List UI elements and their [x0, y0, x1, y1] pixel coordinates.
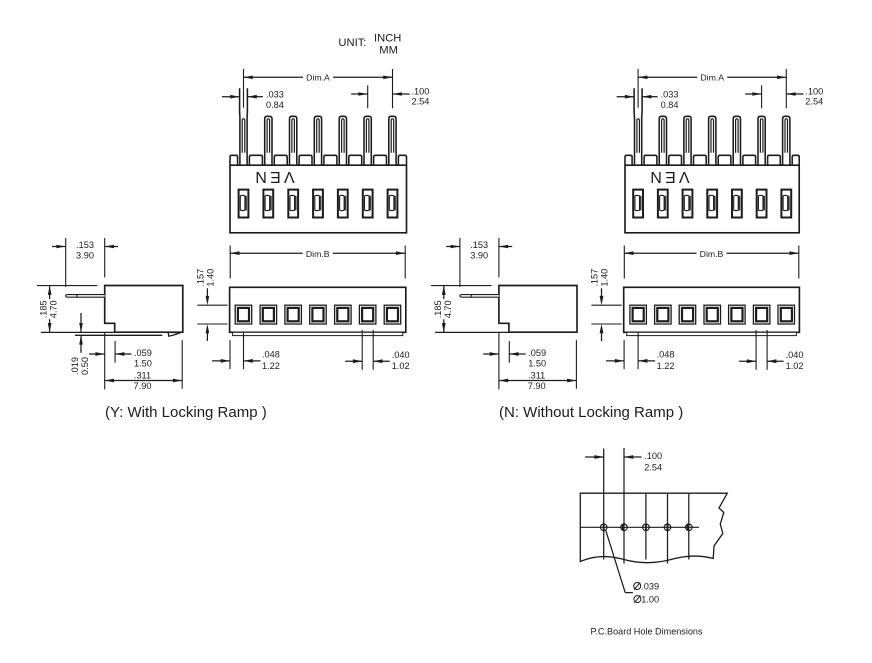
svg-text:3.90: 3.90 [76, 250, 94, 260]
svg-text:2.54: 2.54 [412, 96, 430, 106]
svg-text:.059: .059 [134, 348, 152, 358]
svg-text:VEN: VEN [647, 168, 690, 185]
svg-text:7.90: 7.90 [134, 381, 152, 391]
svg-text:INCH: INCH [374, 33, 401, 45]
svg-text:(Y: With Locking Ramp ): (Y: With Locking Ramp ) [105, 404, 267, 421]
svg-text:.157: .157 [590, 269, 600, 287]
svg-text:.185: .185 [433, 300, 443, 318]
svg-text:1.02: 1.02 [786, 361, 804, 371]
svg-text:Dim.A: Dim.A [700, 72, 724, 82]
svg-text:1.40: 1.40 [205, 269, 215, 287]
svg-text:.019: .019 [70, 357, 80, 375]
svg-text:.185: .185 [39, 300, 49, 318]
svg-text:Dim.A: Dim.A [306, 72, 330, 82]
svg-text:.157: .157 [195, 269, 205, 287]
svg-text:4.70: 4.70 [443, 300, 453, 318]
svg-text:0.50: 0.50 [80, 357, 90, 375]
svg-text:.311: .311 [134, 371, 151, 381]
svg-text:.100: .100 [412, 86, 430, 96]
svg-text:.153: .153 [470, 240, 488, 250]
svg-text:.048: .048 [657, 350, 675, 360]
svg-text:2.54: 2.54 [805, 96, 823, 106]
svg-text:P.C.Board Hole Dimensions: P.C.Board Hole Dimensions [591, 627, 703, 637]
svg-text:.100: .100 [805, 86, 823, 96]
svg-text:1.50: 1.50 [134, 359, 152, 369]
svg-text:1.22: 1.22 [657, 361, 675, 371]
svg-text:1.02: 1.02 [392, 361, 410, 371]
svg-text:1.50: 1.50 [528, 359, 546, 369]
svg-text:1.22: 1.22 [262, 361, 280, 371]
svg-text:.033: .033 [266, 90, 284, 100]
svg-text:.311: .311 [528, 371, 545, 381]
svg-text:1.40: 1.40 [600, 269, 610, 287]
svg-text:.100: .100 [644, 451, 662, 461]
svg-text:7.90: 7.90 [528, 381, 546, 391]
svg-text:.040: .040 [392, 350, 410, 360]
svg-text:UNIT:: UNIT: [338, 37, 366, 49]
svg-text:.040: .040 [786, 350, 804, 360]
svg-text:4.70: 4.70 [49, 300, 59, 318]
svg-text:.033: .033 [661, 90, 679, 100]
svg-text:(N: Without Locking Ramp ): (N: Without Locking Ramp ) [499, 404, 683, 421]
svg-text:.048: .048 [262, 350, 280, 360]
svg-text:3.90: 3.90 [470, 250, 488, 260]
svg-text:.039: .039 [641, 581, 659, 591]
svg-text:.153: .153 [76, 240, 94, 250]
svg-text:Dim.B: Dim.B [306, 249, 330, 259]
svg-text:2.54: 2.54 [644, 462, 662, 472]
svg-text:0.84: 0.84 [661, 100, 679, 110]
svg-text:VEN: VEN [252, 168, 295, 185]
svg-text:Dim.B: Dim.B [700, 249, 724, 259]
svg-text:.059: .059 [528, 348, 546, 358]
svg-text:0.84: 0.84 [266, 100, 284, 110]
svg-text:1.00: 1.00 [641, 595, 659, 605]
svg-text:MM: MM [379, 44, 398, 56]
